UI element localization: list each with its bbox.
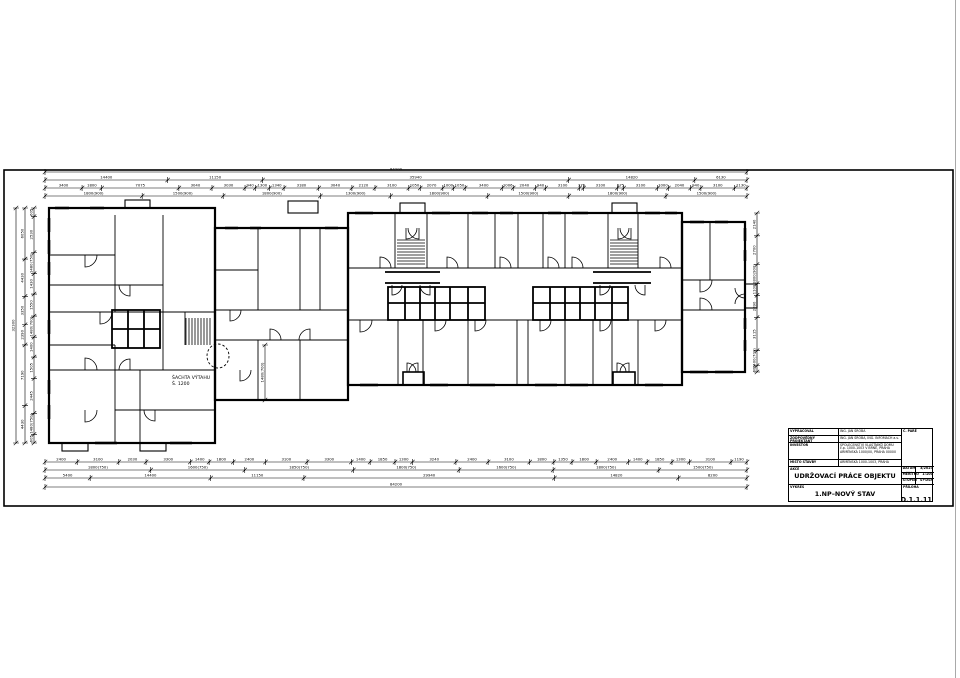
svg-text:2400: 2400: [245, 457, 255, 462]
svg-text:1800: 1800: [216, 457, 226, 462]
svg-text:1050: 1050: [410, 183, 420, 188]
svg-text:575: 575: [617, 183, 625, 188]
svg-text:5400: 5400: [63, 473, 73, 478]
svg-text:1800: 1800: [87, 183, 97, 188]
svg-text:1300(900): 1300(900): [346, 191, 366, 196]
svg-text:3040: 3040: [330, 183, 340, 188]
title-block-right: Č. PARÉ DATUM 3/2023 MĚŘÍTKO 1:100 STUPE…: [902, 429, 934, 501]
title-block-left: VYPRACOVAL ING. JAN SROBA ZODPOVĚDNÝ PRO…: [789, 429, 902, 501]
drawing-page: ŠACHTA VÝTAHU Š. 1200 842001440011150359…: [0, 0, 960, 678]
svg-text:14400: 14400: [144, 473, 157, 478]
svg-text:1500(900): 1500(900): [697, 191, 717, 196]
svg-text:1850: 1850: [378, 457, 388, 462]
svg-text:3240: 3240: [429, 457, 439, 462]
svg-text:1800(900): 1800(900): [429, 191, 449, 196]
svg-text:1800(750): 1800(750): [88, 465, 108, 470]
svg-text:1800(900): 1800(900): [607, 191, 627, 196]
service-cores: [112, 272, 651, 348]
shaft-label-line1: ŠACHTA VÝTAHU: [172, 374, 210, 381]
svg-text:3100: 3100: [636, 183, 646, 188]
svg-text:3400: 3400: [479, 183, 489, 188]
svg-text:3300: 3300: [324, 457, 334, 462]
svg-text:1800(900): 1800(900): [752, 264, 757, 284]
svg-text:1000: 1000: [443, 183, 453, 188]
stair-treads: [186, 240, 638, 345]
svg-text:4430: 4430: [20, 272, 25, 282]
svg-text:1850(750): 1850(750): [289, 465, 309, 470]
svg-text:940: 940: [247, 183, 255, 188]
svg-text:1850: 1850: [655, 457, 665, 462]
priloha-value: D.1.1.11: [901, 497, 932, 505]
svg-text:600: 600: [752, 365, 757, 373]
investor-label: INVESTOR: [789, 443, 839, 459]
svg-text:3400: 3400: [59, 183, 69, 188]
page-edge-line: [955, 0, 956, 678]
svg-text:1300: 1300: [676, 457, 686, 462]
svg-text:6130: 6130: [716, 175, 726, 180]
svg-text:1050: 1050: [455, 183, 465, 188]
door-swings: [85, 228, 745, 422]
svg-text:3040: 3040: [191, 183, 201, 188]
svg-text:1100: 1100: [752, 284, 757, 294]
svg-text:84200: 84200: [390, 167, 403, 172]
svg-text:1350: 1350: [558, 457, 568, 462]
svg-text:1130: 1130: [736, 183, 746, 188]
akce-label: AKCE: [790, 468, 799, 472]
svg-text:3100: 3100: [93, 457, 103, 462]
svg-text:3180: 3180: [297, 183, 307, 188]
svg-text:1500(900): 1500(900): [518, 191, 538, 196]
priloha-label: PŘÍLOHA: [903, 486, 919, 490]
svg-text:1505: 1505: [29, 362, 34, 372]
svg-text:4430: 4430: [20, 419, 25, 429]
meritko-value: 1:100: [916, 473, 934, 478]
svg-text:7075: 7075: [135, 183, 145, 188]
svg-text:2390: 2390: [20, 329, 25, 339]
svg-text:1190: 1190: [734, 457, 744, 462]
misto-stavby-value: ARMÉNSKÁ 1000-1003, PRAHA: [839, 460, 901, 466]
svg-text:2040: 2040: [675, 183, 685, 188]
svg-text:605: 605: [29, 208, 34, 216]
svg-text:1340: 1340: [272, 183, 282, 188]
svg-text:1400: 1400: [29, 342, 34, 352]
svg-text:1500(900): 1500(900): [173, 191, 193, 196]
title-block: VYPRACOVAL ING. JAN SROBA ZODPOVĚDNÝ PRO…: [788, 428, 933, 502]
svg-text:1300: 1300: [258, 183, 268, 188]
svg-text:3100: 3100: [281, 457, 291, 462]
svg-text:29940: 29940: [423, 473, 436, 478]
svg-text:1480(750): 1480(750): [29, 253, 34, 273]
svg-text:1480(700): 1480(700): [260, 362, 265, 382]
svg-text:1400(700): 1400(700): [752, 348, 757, 368]
svg-text:3100: 3100: [558, 183, 568, 188]
svg-text:1800: 1800: [579, 457, 589, 462]
svg-text:1800(900): 1800(900): [84, 191, 104, 196]
svg-text:3100: 3100: [504, 457, 514, 462]
svg-text:2445: 2445: [29, 391, 34, 401]
svg-text:1800(750): 1800(750): [396, 465, 416, 470]
svg-text:1600(750): 1600(750): [496, 465, 516, 470]
svg-text:940: 940: [692, 183, 700, 188]
svg-text:2400: 2400: [467, 457, 477, 462]
svg-text:1430: 1430: [29, 278, 34, 288]
svg-text:35940: 35940: [410, 175, 423, 180]
svg-text:1550: 1550: [29, 300, 34, 310]
svg-text:2030: 2030: [128, 457, 138, 462]
svg-text:1400: 1400: [195, 457, 205, 462]
svg-text:14820: 14820: [610, 473, 623, 478]
svg-text:375: 375: [578, 183, 586, 188]
svg-text:2400: 2400: [56, 457, 66, 462]
svg-text:605: 605: [29, 434, 34, 442]
svg-text:940: 940: [537, 183, 545, 188]
svg-text:2040: 2040: [520, 183, 530, 188]
svg-text:1800(750): 1800(750): [596, 465, 616, 470]
vykres-value: 1.NP–NOVÝ STAV: [789, 491, 901, 498]
pare-label: Č. PARÉ: [902, 429, 934, 467]
svg-text:2140: 2140: [752, 219, 757, 229]
vypracoval-value: ING. JAN SROBA: [839, 429, 901, 435]
svg-text:1480(750): 1480(750): [29, 413, 34, 433]
vypracoval-label: VYPRACOVAL: [789, 429, 839, 435]
svg-text:3030: 3030: [224, 183, 234, 188]
svg-text:2700: 2700: [752, 245, 757, 255]
svg-text:1400: 1400: [633, 457, 643, 462]
svg-text:1000: 1000: [658, 183, 668, 188]
svg-text:3100: 3100: [596, 183, 606, 188]
zodpovedny-projektant-label: ZODPOVĚDNÝ PROJEKTANT: [789, 436, 839, 442]
svg-text:1800: 1800: [537, 457, 547, 462]
svg-text:1480(700): 1480(700): [29, 316, 34, 336]
shaft-label-line2: Š. 1200: [172, 380, 190, 387]
stupen-label: STUPEŇ: [902, 479, 916, 484]
stupen-value: S+DSP: [916, 479, 934, 484]
svg-text:1600(750): 1600(750): [188, 465, 208, 470]
svg-text:3115: 3115: [752, 329, 757, 339]
priloha-cell: PŘÍLOHA D.1.1.11: [902, 485, 934, 508]
svg-text:8200: 8200: [708, 473, 718, 478]
svg-text:11150: 11150: [251, 473, 264, 478]
vykres-label: VÝKRES: [790, 486, 804, 490]
svg-text:3300: 3300: [163, 457, 173, 462]
svg-text:2070: 2070: [427, 183, 437, 188]
svg-text:3100: 3100: [713, 183, 723, 188]
svg-text:2090: 2090: [752, 301, 757, 311]
akce-value: UDRŽOVACÍ PRÁCE OBJEKTU: [789, 473, 901, 480]
elevator-shaft: ŠACHTA VÝTAHU Š. 1200: [172, 344, 229, 387]
svg-text:3350: 3350: [20, 305, 25, 315]
svg-text:14400: 14400: [100, 175, 113, 180]
svg-text:3100: 3100: [387, 183, 397, 188]
svg-text:6050: 6050: [20, 228, 25, 238]
svg-text:2530: 2530: [29, 229, 34, 239]
svg-text:2120: 2120: [359, 183, 369, 188]
misto-stavby-label: MÍSTO STAVBY: [789, 460, 839, 466]
svg-text:1400: 1400: [356, 457, 366, 462]
svg-text:32300: 32300: [11, 319, 16, 332]
svg-text:1006: 1006: [503, 183, 513, 188]
investor-value: SPOLEČENSTVÍ VLASTNÍKŮ DOMU č.p. 1000-10…: [839, 443, 901, 459]
svg-text:1800(900): 1800(900): [262, 191, 282, 196]
svg-text:3100: 3100: [705, 457, 715, 462]
floor-plan-canvas: ŠACHTA VÝTAHU Š. 1200 842001440011150359…: [0, 0, 960, 678]
svg-text:11150: 11150: [209, 175, 222, 180]
svg-text:14820: 14820: [626, 175, 639, 180]
svg-text:7190: 7190: [20, 370, 25, 380]
svg-text:2400: 2400: [607, 457, 617, 462]
zodpovedny-projektant-value: ING. JAN SROBA, ING. INFOMACH a.s.: [839, 436, 901, 442]
interior-walls: [49, 213, 745, 443]
investor-line3: ARMÉNSKÁ 1000/00, PRAHA 00000: [840, 451, 900, 455]
svg-text:84200: 84200: [390, 482, 403, 487]
svg-text:1300: 1300: [399, 457, 409, 462]
svg-text:1500(750): 1500(750): [693, 465, 713, 470]
